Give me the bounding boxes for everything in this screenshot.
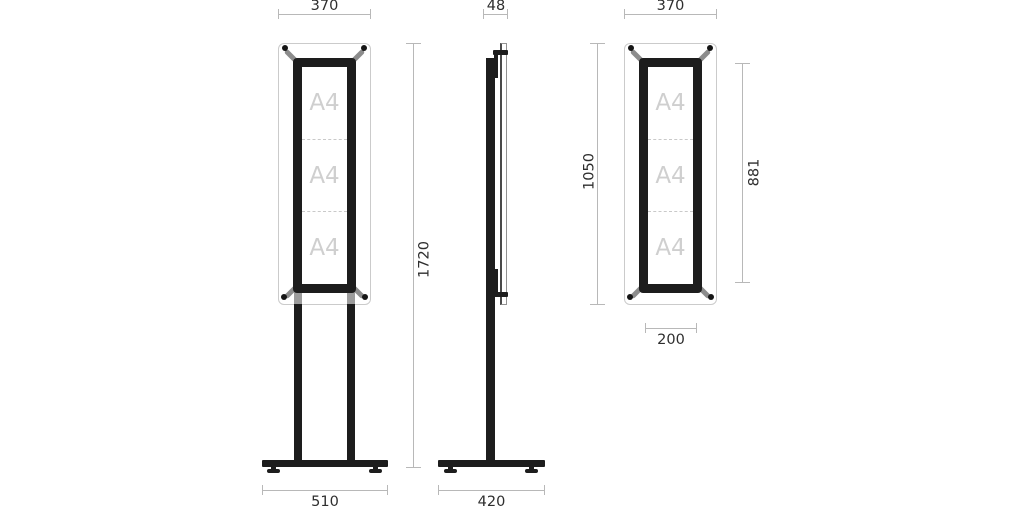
dim-tick xyxy=(406,467,421,468)
foot-pad xyxy=(267,469,280,473)
dim-panel-width-line xyxy=(624,14,717,15)
clamp-bracket xyxy=(494,269,498,292)
a4-slot: A4 xyxy=(302,211,347,284)
clip-dot xyxy=(281,294,287,300)
a4-placeholder-label: A4 xyxy=(309,163,339,189)
dim-base-width-line xyxy=(262,490,388,491)
dim-depth-label: 48 xyxy=(471,0,521,14)
panel-clamp xyxy=(493,292,508,297)
base-bar xyxy=(262,460,388,467)
frame-interior: A4 A4 A4 xyxy=(648,67,693,284)
a4-slot: A4 xyxy=(648,67,693,139)
clip-dot xyxy=(282,45,288,51)
dim-total-height-label: 1720 xyxy=(418,230,433,290)
dim-tick xyxy=(645,323,646,333)
dim-clip-spacing-line xyxy=(645,328,697,329)
dim-tick xyxy=(735,282,750,283)
foot-pad xyxy=(525,469,538,473)
clip-dot xyxy=(627,294,633,300)
dim-depth-line xyxy=(483,14,508,15)
foot-pad xyxy=(444,469,457,473)
dim-base-depth-line xyxy=(438,490,545,491)
a4-placeholder-label: A4 xyxy=(309,235,339,261)
a4-slot: A4 xyxy=(648,211,693,284)
dim-total-height-line xyxy=(413,43,414,468)
dim-tick xyxy=(262,485,263,495)
dim-tick xyxy=(735,63,750,64)
panel-profile xyxy=(500,43,507,305)
dim-tick xyxy=(387,485,388,495)
dim-tick xyxy=(590,43,605,44)
dim-tick xyxy=(406,43,421,44)
clip-dot xyxy=(361,45,367,51)
stand-pole xyxy=(486,58,495,460)
clip-dot xyxy=(628,45,634,51)
a4-placeholder-label: A4 xyxy=(655,163,685,189)
clip-dot xyxy=(707,45,713,51)
dim-tick xyxy=(590,304,605,305)
dim-panel-height-label: 1050 xyxy=(583,142,598,202)
clamp-bracket xyxy=(494,55,498,78)
a4-placeholder-label: A4 xyxy=(309,90,339,116)
clip-dot xyxy=(708,294,714,300)
a4-slot: A4 xyxy=(302,139,347,212)
dim-panel-width-label: 370 xyxy=(624,0,717,14)
a4-slot: A4 xyxy=(302,67,347,139)
dim-front-width-line xyxy=(278,14,371,15)
dim-tick xyxy=(544,485,545,495)
stand-leg xyxy=(294,304,302,460)
stand-leg xyxy=(347,304,355,460)
technical-drawing-canvas: 370 A4 A4 A4 510 xyxy=(0,0,1020,510)
clip-dot xyxy=(362,294,368,300)
a4-slot: A4 xyxy=(648,139,693,212)
dim-base-width-label: 510 xyxy=(262,495,388,510)
dim-clip-spacing-label: 200 xyxy=(645,333,697,348)
dim-window-height-line xyxy=(742,63,743,283)
dim-front-width-label: 370 xyxy=(278,0,371,14)
dim-window-height-label: 881 xyxy=(748,143,763,203)
dim-base-depth-label: 420 xyxy=(438,495,545,510)
dim-tick xyxy=(438,485,439,495)
a4-placeholder-label: A4 xyxy=(655,90,685,116)
dim-tick xyxy=(696,323,697,333)
foot-pad xyxy=(369,469,382,473)
a4-placeholder-label: A4 xyxy=(655,235,685,261)
frame-interior: A4 A4 A4 xyxy=(302,67,347,284)
